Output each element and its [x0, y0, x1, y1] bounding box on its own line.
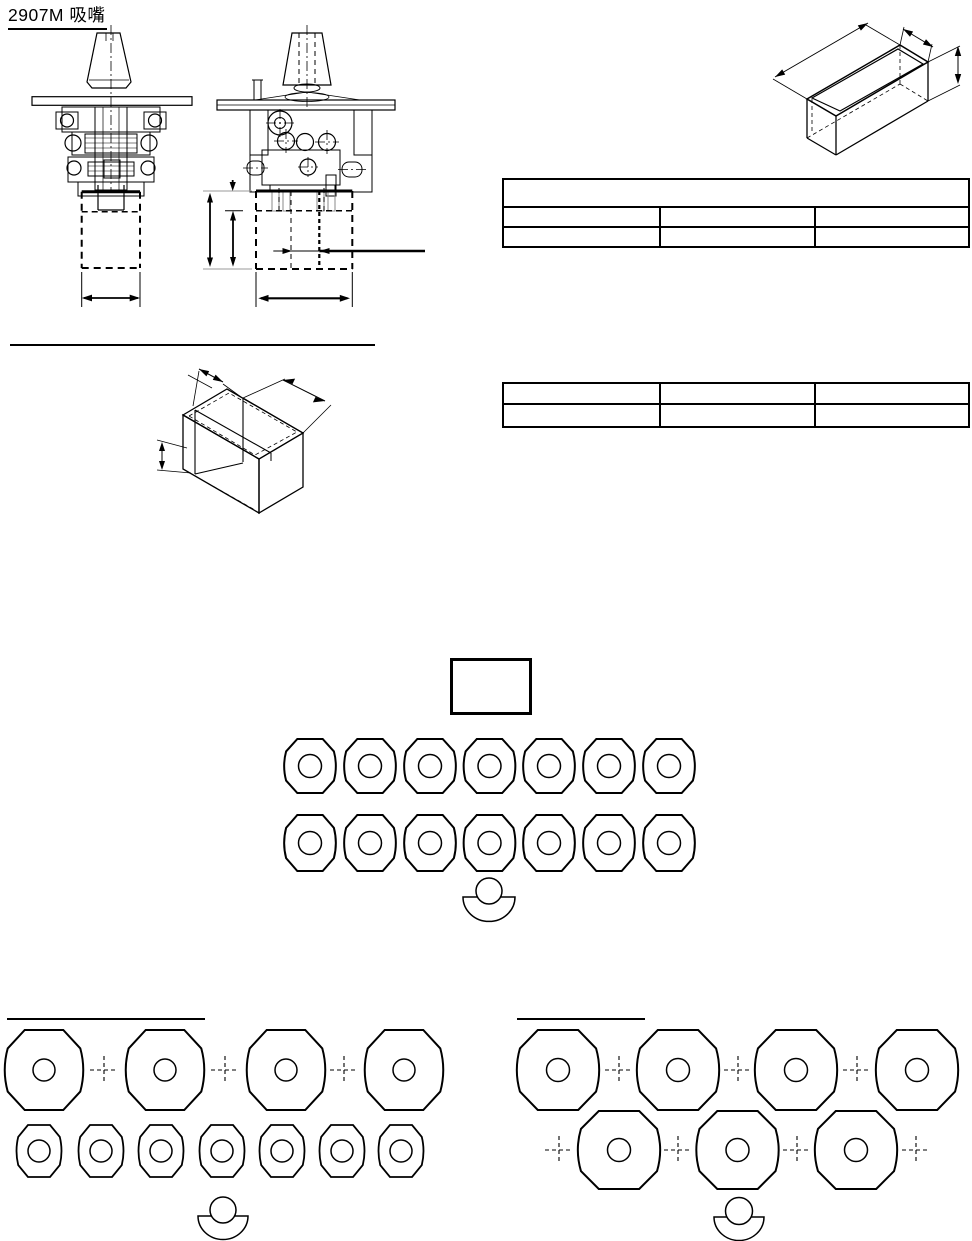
nozzle-top-view — [404, 815, 456, 871]
slot-bottom — [195, 463, 243, 474]
nozzle-top-view — [16, 1125, 61, 1177]
gripper-mechanism — [243, 109, 372, 196]
height-dimensions — [203, 180, 252, 269]
nozzle-top-view — [199, 1125, 244, 1177]
nozzle-top-view — [637, 1030, 719, 1110]
width-dimension — [82, 272, 140, 307]
center-mark-crosshair — [843, 1056, 871, 1084]
table-cell — [504, 228, 661, 248]
spec-table-upper — [502, 178, 970, 248]
nozzle-top-view — [517, 1030, 599, 1110]
nozzle-top-view — [365, 1030, 444, 1110]
nozzle-assembly-side-view — [195, 20, 430, 315]
table-cell — [816, 405, 968, 426]
flange-plate — [32, 97, 192, 106]
table-cell — [816, 208, 968, 228]
nozzle-top-view — [344, 815, 396, 871]
nozzle-top-view — [523, 739, 575, 793]
center-mark-crosshair — [902, 1136, 930, 1164]
nozzle-top-view — [643, 739, 695, 793]
nozzle-top-view — [464, 739, 516, 793]
table-cell — [504, 208, 661, 228]
hidden-edge — [900, 84, 928, 101]
nozzle-top-view — [583, 739, 635, 793]
nozzle-top-view — [643, 815, 695, 871]
taper-shank — [87, 33, 131, 88]
slot-width-dimension — [188, 369, 241, 406]
nozzle-holder-station — [463, 878, 515, 921]
nozzle-group-middle — [275, 725, 705, 930]
center-mark-crosshair — [545, 1136, 573, 1164]
table-cell — [661, 384, 816, 405]
nozzle-top-view — [319, 1125, 364, 1177]
nozzle-top-view — [78, 1125, 123, 1177]
nozzle-assembly-front-view — [10, 20, 200, 310]
nozzle-top-view — [464, 815, 516, 871]
hidden-edge — [807, 84, 900, 138]
slotted-block-isometric — [145, 360, 395, 525]
center-mark-crosshair — [664, 1136, 692, 1164]
table-cell — [661, 208, 816, 228]
table-cell — [816, 384, 968, 405]
center-mark-crosshair — [90, 1056, 118, 1084]
block-body — [183, 389, 303, 513]
nozzle-top-view — [755, 1030, 837, 1110]
nozzle-top-view — [523, 815, 575, 871]
nozzle-top-view — [815, 1111, 897, 1189]
pickup-envelope-dashed-box — [82, 192, 140, 268]
nozzle-top-view — [876, 1030, 958, 1110]
table-cell — [816, 228, 968, 248]
depth-dimension — [256, 272, 352, 307]
height-dimension — [928, 46, 961, 101]
nozzle-top-view — [5, 1030, 84, 1110]
center-mark-crosshair — [605, 1056, 633, 1084]
tray-body — [807, 45, 928, 155]
center-mark-crosshair — [330, 1056, 358, 1084]
slot-depth-dimension — [157, 440, 191, 473]
nozzle-top-view — [247, 1030, 326, 1110]
nozzle-top-view — [696, 1111, 778, 1189]
nozzle-holder-station — [198, 1197, 248, 1240]
feeder-placeholder-box — [450, 658, 532, 715]
table-cell — [504, 384, 661, 405]
section-underline-left — [7, 1018, 205, 1020]
nozzle-top-view — [138, 1125, 183, 1177]
section-divider — [10, 344, 375, 346]
center-mark-crosshair — [211, 1056, 239, 1084]
section-underline-right — [517, 1018, 645, 1020]
center-mark-crosshair — [724, 1056, 752, 1084]
nozzle-top-view — [284, 815, 336, 871]
pickup-envelope-dashed-box — [256, 191, 352, 269]
table-cell — [504, 405, 661, 426]
offset-dimension-leader — [273, 248, 425, 254]
center-mark-crosshair — [783, 1136, 811, 1164]
table-cell — [661, 405, 816, 426]
nozzle-top-view — [378, 1125, 423, 1177]
nozzle-top-view — [404, 739, 456, 793]
nozzle-top-view — [578, 1111, 660, 1189]
nozzle-top-view — [583, 815, 635, 871]
nozzle-group-bottom_right — [510, 1025, 972, 1241]
table-cell — [661, 228, 816, 248]
nozzle-top-view — [259, 1125, 304, 1177]
nozzle-top-view — [126, 1030, 205, 1110]
nozzle-top-view — [344, 739, 396, 793]
manual-page: 2907M 吸嘴 — [0, 0, 972, 1241]
nozzle-holder-station — [714, 1198, 764, 1241]
nozzle-top-view — [284, 739, 336, 793]
spec-table-lower — [502, 382, 970, 428]
spec-table-upper-header — [504, 180, 968, 208]
component-tray-isometric — [765, 15, 972, 160]
nozzle-group-bottom_left — [0, 1025, 460, 1241]
width-dimension — [900, 27, 933, 62]
